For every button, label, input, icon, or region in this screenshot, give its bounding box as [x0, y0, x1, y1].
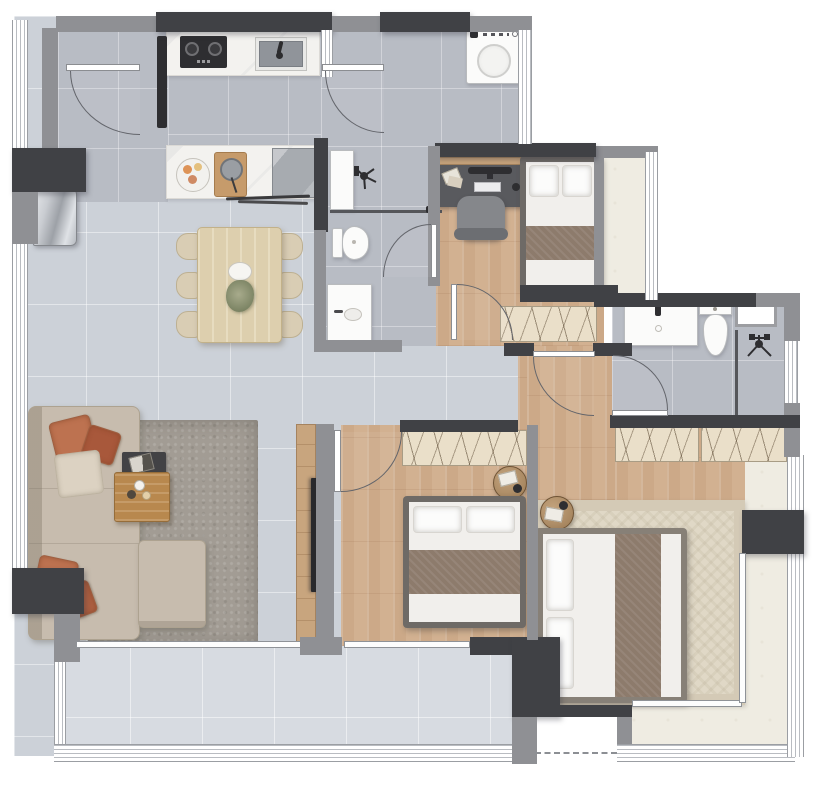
wall-master-west: [527, 425, 538, 640]
wall-top-1: [56, 16, 158, 32]
floor-balcony-1: [598, 152, 648, 298]
shower-tray-1: [330, 150, 354, 210]
wall-block-se: [512, 637, 560, 717]
master-bed-pillow-top: [546, 539, 574, 611]
ac-ledge-dash: [535, 752, 617, 755]
desk-shelf: [436, 157, 532, 165]
side-table-1-cup: [513, 484, 522, 493]
wall-bedroom-2-north: [400, 420, 518, 432]
wall-bathroom-2-south: [610, 415, 800, 428]
dining-plate: [228, 262, 252, 281]
sliding-door-master-east: [739, 553, 746, 703]
wall-top-3: [332, 16, 380, 32]
keyboard: [474, 182, 501, 192]
floor-plan: [0, 0, 814, 791]
cooktop-burner-right: [208, 42, 222, 56]
vanity-2-drain: [655, 325, 662, 332]
washer-drum: [477, 44, 511, 78]
kitchen-door-leaf: [322, 64, 384, 71]
washer-buttons: [483, 33, 509, 36]
fruit-red: [188, 175, 197, 184]
bed-1-pillow-right: [562, 165, 592, 197]
wall-bathroom-1-west-gray: [314, 230, 326, 346]
wall-bathroom-1-south: [314, 340, 402, 352]
floor-kitchen: [168, 74, 321, 146]
bed-1-blanket: [526, 226, 596, 260]
window-balcony-left: [54, 662, 66, 746]
bed-2-blanket: [409, 550, 520, 594]
wardrobe-1: [500, 306, 597, 342]
dining-chair: [176, 311, 199, 338]
wall-seg-south-2: [558, 705, 632, 717]
cooktop-knobs: [197, 60, 211, 63]
wall-bedroom-1-top: [435, 143, 596, 157]
window-bathroom-2-right: [784, 341, 798, 403]
shower-head-2-icon: [743, 332, 777, 362]
dining-chair: [280, 272, 303, 299]
sliding-door-living: [76, 641, 302, 648]
window-laundry-right: [518, 30, 532, 144]
wardrobe-2: [402, 430, 527, 466]
vanity-1-faucet: [334, 310, 343, 313]
wall-bedroom-1-east: [594, 152, 604, 298]
wall-seg-south: [470, 637, 514, 655]
dining-chair: [280, 311, 303, 338]
washer-dial: [470, 31, 478, 38]
monitor: [468, 167, 512, 174]
wall-block-east: [742, 510, 804, 554]
cup-dark: [127, 490, 136, 499]
wall-bathroom-2-top-gray: [756, 293, 800, 307]
wall-bathroom-2-top: [594, 293, 756, 307]
dining-chair: [176, 272, 199, 299]
bedroom-2-door-leaf: [334, 430, 341, 492]
sliding-door-bedroom-2: [344, 641, 470, 648]
dishwasher: [272, 148, 318, 198]
office-chair-back: [454, 228, 508, 240]
master-bed-blanket: [615, 534, 661, 697]
fruit-yellow: [194, 163, 202, 171]
window-balcony-bottom: [54, 744, 532, 762]
sliding-door-master-south: [632, 700, 742, 707]
sofa-pillow-cream: [53, 449, 104, 498]
wall-right-2: [784, 403, 800, 457]
glass-partition-2: [735, 330, 738, 420]
wall-bedroom-1-south: [520, 285, 618, 302]
side-table-2-cup: [559, 501, 568, 510]
wall-post-left: [12, 192, 38, 244]
fruit-orange: [183, 165, 192, 174]
window-master-balcony-bottom: [617, 744, 795, 762]
wall-top-4: [380, 12, 470, 32]
kitchen-tall-cabinet: [157, 36, 167, 128]
cup-white: [134, 480, 145, 491]
window-balcony-1-right: [645, 152, 658, 300]
toilet-2-button: [713, 307, 717, 311]
sofa-chaise: [138, 540, 206, 628]
bed-2-pillow-right: [466, 506, 515, 533]
wall-bathroom-1-west-dark: [314, 138, 328, 232]
monitor-stand: [487, 174, 493, 179]
cup-cream: [142, 491, 151, 500]
wardrobe-master-b: [701, 426, 787, 462]
dining-chair: [280, 233, 303, 260]
window-living-left: [12, 244, 28, 568]
dining-chair: [176, 233, 199, 260]
wall-top-2: [156, 12, 332, 32]
refrigerator: [33, 188, 77, 246]
bed-2-pillow-left: [413, 506, 462, 533]
bathroom-1-door-leaf: [431, 224, 437, 278]
desk-mug: [512, 183, 520, 191]
entry-door-leaf: [66, 64, 140, 71]
cooktop-burner-left: [185, 42, 199, 56]
wall-post-se: [512, 717, 537, 764]
wall-hall-1: [504, 343, 534, 356]
bed-1-pillow-left: [529, 165, 559, 197]
window-master-balcony-right: [787, 455, 804, 757]
window-left-top: [12, 20, 28, 150]
toilet-1-button: [352, 240, 356, 244]
wall-foyer-left: [42, 28, 58, 150]
floor-living-balcony: [58, 645, 513, 748]
wall-bedroom-2-west: [316, 424, 334, 645]
wardrobe-master-a: [615, 426, 699, 462]
wall-post-sw: [54, 614, 80, 662]
shower-head-1-icon: [352, 162, 382, 196]
vanity-1-basin: [344, 308, 362, 321]
kitchen-faucet-head: [276, 52, 283, 59]
wall-block-sw: [12, 568, 84, 614]
wall-block-entry: [12, 148, 86, 192]
bathroom-2-door-leaf: [612, 410, 668, 416]
